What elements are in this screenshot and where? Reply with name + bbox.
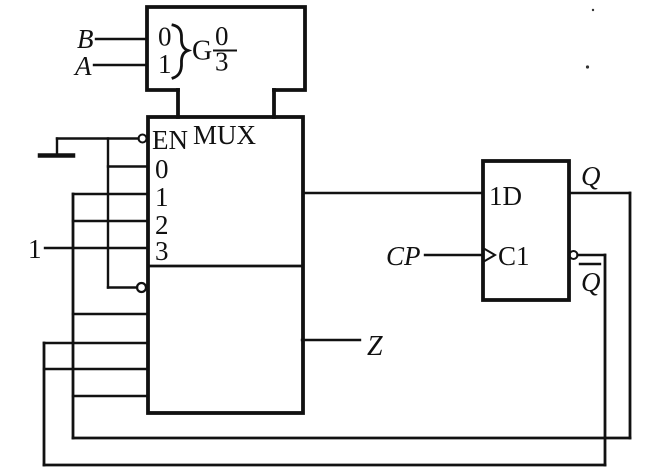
svg-text:1: 1 [158, 49, 172, 79]
svg-text:0: 0 [158, 22, 172, 52]
svg-text:MUX: MUX [193, 120, 257, 150]
svg-text:1: 1 [155, 182, 169, 212]
svg-text:1: 1 [28, 234, 42, 264]
svg-text:3: 3 [155, 236, 169, 266]
svg-text:CP: CP [386, 241, 421, 271]
svg-text:G: G [192, 36, 212, 67]
svg-text:A: A [73, 51, 92, 81]
svg-text:Z: Z [367, 331, 383, 362]
svg-text:0: 0 [155, 154, 169, 184]
svg-text:1D: 1D [489, 181, 522, 211]
svg-text:C1: C1 [498, 241, 530, 271]
svg-text:B: B [77, 24, 94, 54]
svg-text:EN: EN [152, 125, 188, 155]
svg-text:Q: Q [581, 267, 601, 297]
svg-text:Q: Q [581, 161, 601, 191]
